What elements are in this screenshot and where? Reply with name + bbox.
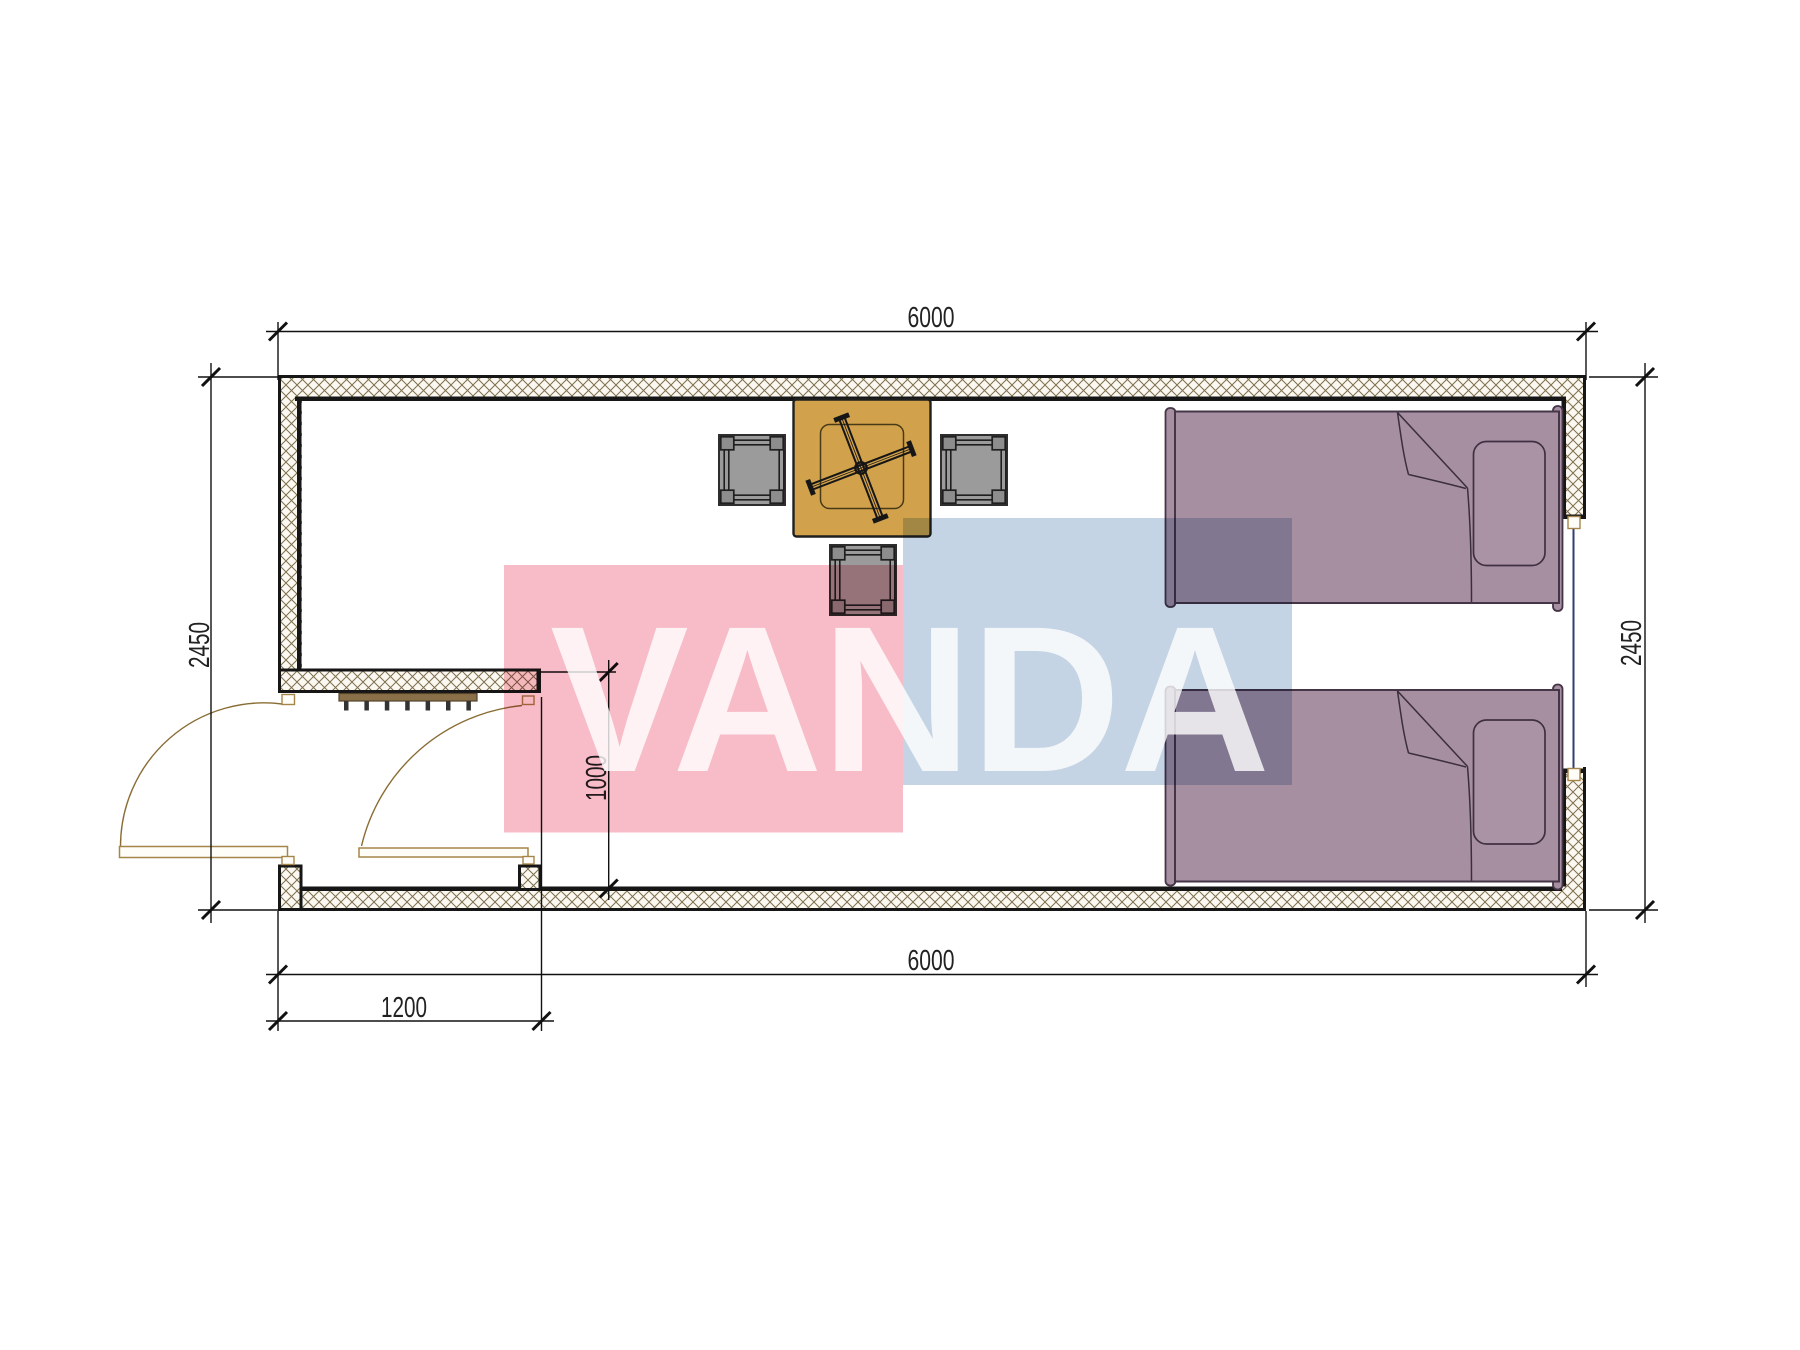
svg-text:6000: 6000 <box>908 302 955 334</box>
svg-text:VANDA: VANDA <box>550 584 1269 816</box>
svg-text:6000: 6000 <box>908 945 955 977</box>
svg-text:1200: 1200 <box>381 992 427 1024</box>
svg-text:2450: 2450 <box>184 622 216 668</box>
svg-text:2450: 2450 <box>1616 620 1648 666</box>
